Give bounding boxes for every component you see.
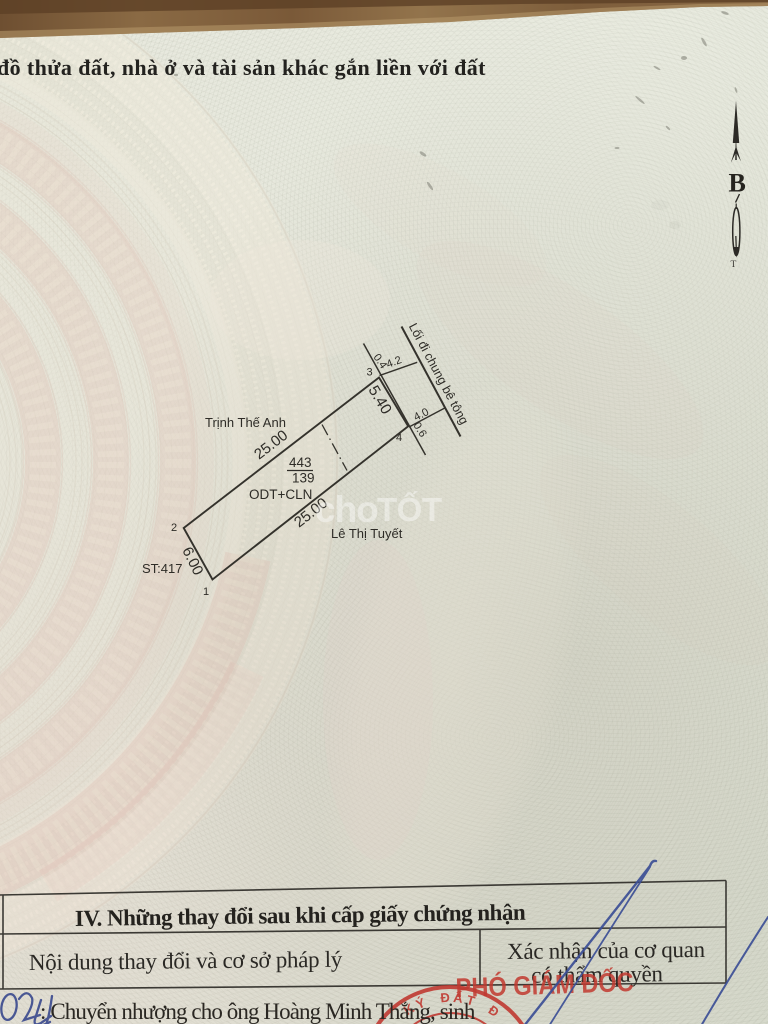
- svg-text:Đ: Đ: [486, 1002, 502, 1020]
- svg-text:cho: cho: [315, 489, 378, 530]
- svg-text:6.00: 6.00: [178, 544, 206, 578]
- svg-text:ST:417: ST:417: [142, 561, 182, 576]
- svg-text:B: B: [729, 169, 746, 198]
- svg-text:4: 4: [396, 432, 402, 444]
- svg-text:25.00: 25.00: [251, 427, 291, 463]
- svg-text:0.6: 0.6: [410, 420, 428, 439]
- svg-text:139: 139: [292, 471, 315, 486]
- svg-text:IV. Những thay đổi sau khi cấp: IV. Những thay đổi sau khi cấp giấy chứn…: [75, 900, 526, 931]
- svg-text:Nội dung thay đổi và cơ sở phá: Nội dung thay đổi và cơ sở pháp lý: [29, 947, 343, 975]
- svg-text:1: 1: [203, 586, 209, 598]
- svg-text:đồ thửa đất, nhà ở và tài sản: đồ thửa đất, nhà ở và tài sản khác gắn l…: [0, 55, 486, 80]
- svg-text:2: 2: [171, 522, 177, 534]
- svg-text:PHÓ GIÁM ĐỐC: PHÓ GIÁM ĐỐC: [455, 965, 634, 1003]
- svg-text:Trịnh Thế Anh: Trịnh Thế Anh: [205, 415, 286, 430]
- svg-text:Xác nhận của cơ quan: Xác nhận của cơ quan: [507, 937, 706, 964]
- svg-text:T: T: [731, 260, 737, 270]
- svg-text:3: 3: [367, 367, 373, 379]
- svg-text:ODT+CLN: ODT+CLN: [249, 487, 312, 502]
- svg-text:TỐT: TỐT: [377, 490, 442, 528]
- svg-text:: Chuyển nhượng cho ông Hoàng: : Chuyển nhượng cho ông Hoàng Minh Thắng…: [40, 999, 476, 1024]
- svg-text:5.40: 5.40: [365, 383, 395, 418]
- svg-text:443: 443: [289, 455, 312, 470]
